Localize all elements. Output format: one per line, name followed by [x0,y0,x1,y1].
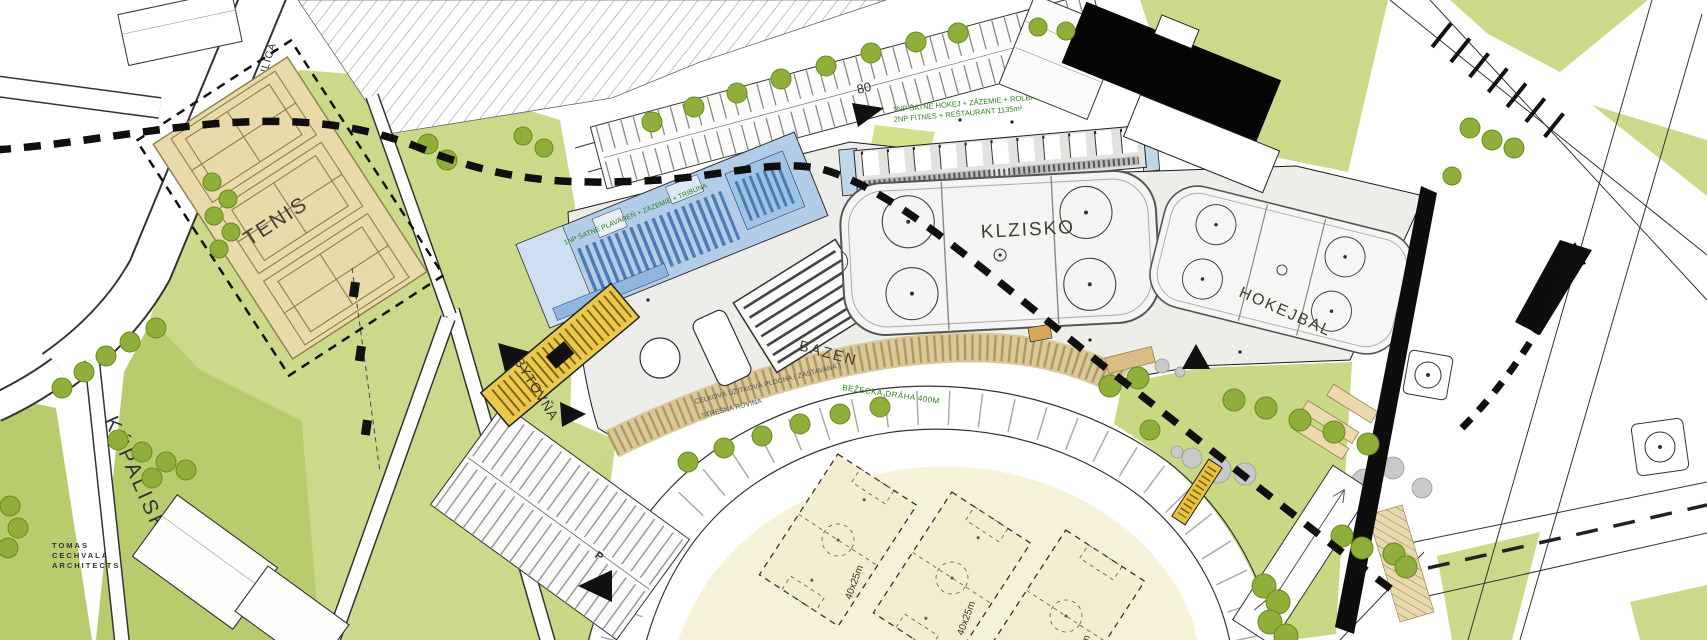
outdoor-pool-round [640,338,680,378]
credit-line3: ARCHITECTS [52,561,120,570]
site-plan: KADNÁROVA ULICA BEŽECKÁ DRÁHA 400M [0,0,1707,640]
ice-rink: KLZISKO [838,169,1162,337]
site-plan-drawing: KADNÁROVA ULICA BEŽECKÁ DRÁHA 400M [0,0,1707,640]
credit-line2: CECHVALA [52,551,109,560]
credit-line1: TOMAS [52,541,89,550]
